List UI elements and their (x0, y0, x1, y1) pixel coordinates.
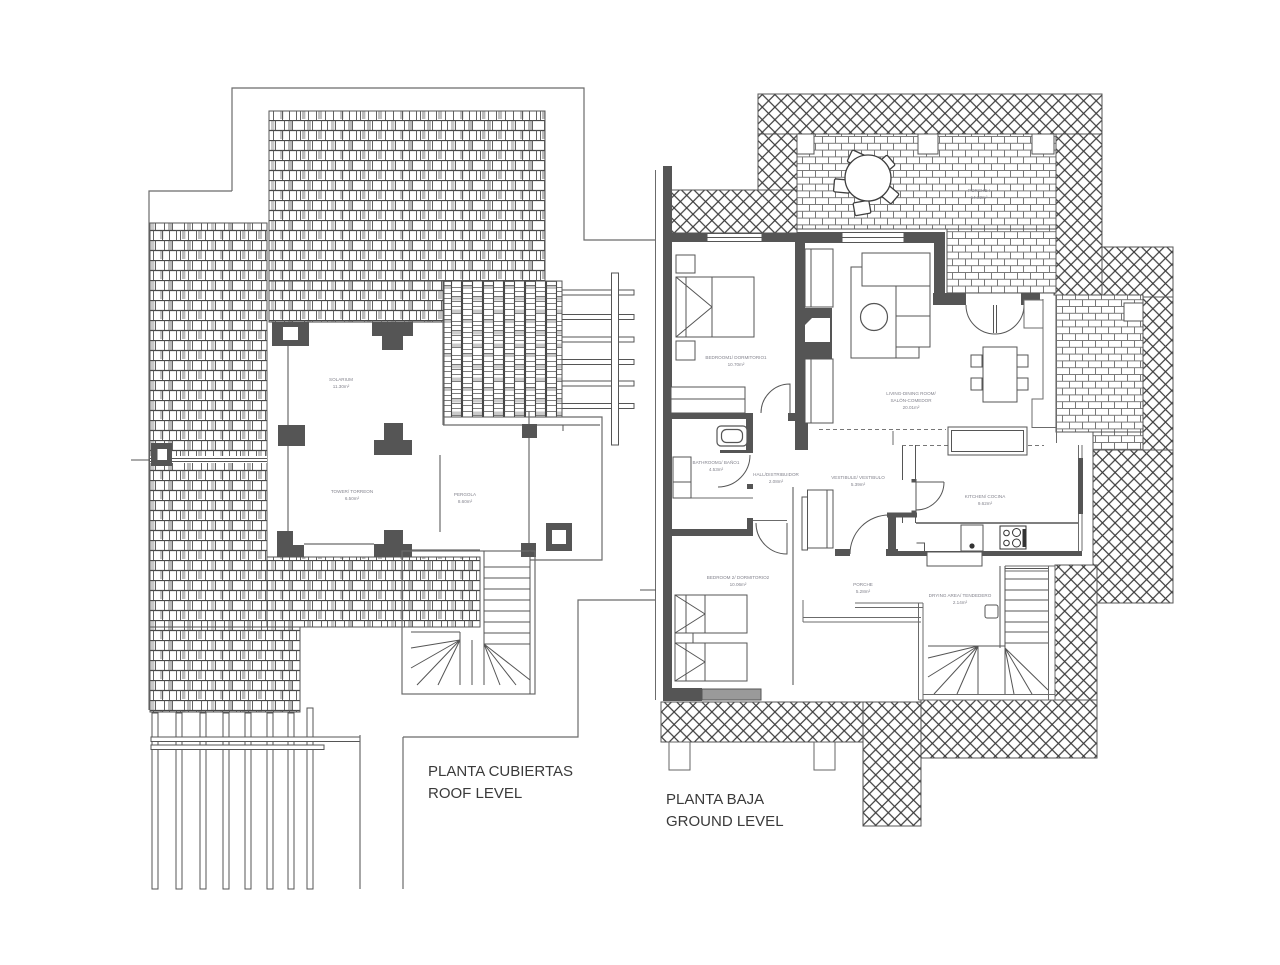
svg-text:BATHROOM1/ BAÑO1: BATHROOM1/ BAÑO1 (693, 459, 740, 465)
svg-text:5.28m²: 5.28m² (856, 589, 871, 594)
svg-text:9.62m²: 9.62m² (978, 501, 993, 506)
svg-text:DRYING AREA/ TENDEDERO: DRYING AREA/ TENDEDERO (929, 593, 992, 598)
svg-text:SOLARIUM: SOLARIUM (329, 377, 353, 382)
svg-text:ROOF LEVEL: ROOF LEVEL (428, 785, 522, 802)
svg-text:VESTIBULE/ VESTIBULO: VESTIBULE/ VESTIBULO (831, 475, 885, 480)
svg-text:20.01m²: 20.01m² (903, 405, 920, 410)
svg-text:PORCHE I: PORCHE I (968, 188, 990, 193)
svg-text:5.39m²: 5.39m² (851, 482, 866, 487)
svg-text:2.08m²: 2.08m² (769, 479, 784, 484)
svg-text:BEDROOM1/ DORMITORIO1: BEDROOM1/ DORMITORIO1 (705, 355, 767, 360)
svg-text:PORCHE: PORCHE (853, 582, 873, 587)
svg-text:SALÓN-COMEDOR: SALÓN-COMEDOR (890, 397, 932, 403)
svg-text:8.60m²: 8.60m² (458, 499, 473, 504)
svg-text:GROUND LEVEL: GROUND LEVEL (666, 813, 784, 830)
svg-text:HALL/DISTRIBUIDOR: HALL/DISTRIBUIDOR (753, 472, 799, 477)
svg-text:TOWER/ TORREON: TOWER/ TORREON (331, 489, 373, 494)
svg-text:2.14m²: 2.14m² (953, 600, 968, 605)
svg-text:LIVING-DINING ROOM/: LIVING-DINING ROOM/ (886, 391, 936, 396)
svg-text:4.53m²: 4.53m² (709, 467, 724, 472)
svg-text:KITCHEN/ COCINA: KITCHEN/ COCINA (965, 494, 1007, 499)
svg-text:6.50m²: 6.50m² (345, 496, 360, 501)
svg-text:PLANTA CUBIERTAS: PLANTA CUBIERTAS (428, 763, 573, 780)
svg-text:11.30m²: 11.30m² (333, 384, 350, 389)
svg-text:PERGOLA: PERGOLA (454, 492, 477, 497)
svg-text:14.22m²: 14.22m² (971, 195, 988, 200)
svg-text:10.70m²: 10.70m² (728, 362, 745, 367)
svg-text:PLANTA BAJA: PLANTA BAJA (666, 791, 764, 808)
svg-text:10.06m²: 10.06m² (730, 582, 747, 587)
svg-text:BEDROOM 2/ DORMITORIO2: BEDROOM 2/ DORMITORIO2 (707, 575, 770, 580)
